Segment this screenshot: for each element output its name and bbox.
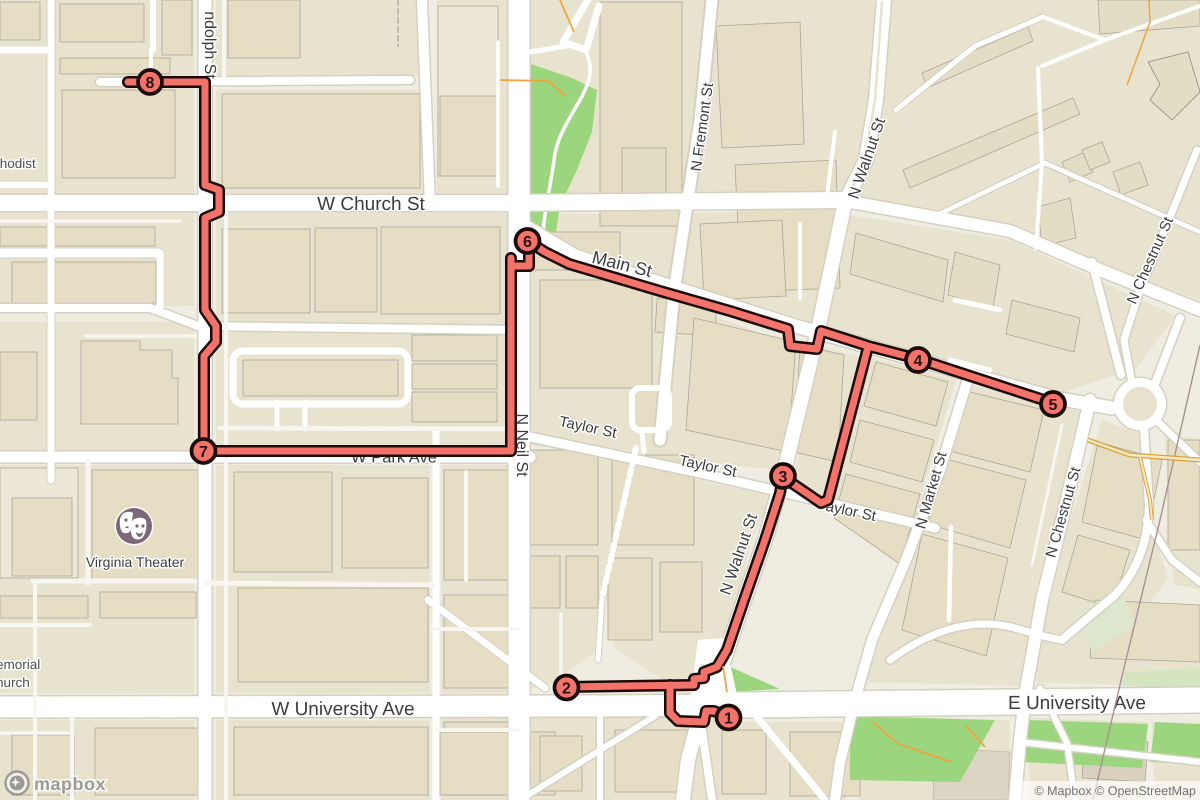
svg-text:ndolph St: ndolph St — [201, 11, 218, 79]
svg-text:W University Ave: W University Ave — [271, 699, 414, 720]
svg-text:5: 5 — [1049, 397, 1058, 414]
svg-text:Virginia Theater: Virginia Theater — [86, 554, 185, 570]
svg-text:hurch: hurch — [0, 675, 30, 690]
svg-text:8: 8 — [146, 75, 155, 92]
svg-text:E University Ave: E University Ave — [1008, 693, 1146, 714]
svg-text:4: 4 — [914, 353, 923, 370]
svg-text:emorial: emorial — [0, 657, 40, 672]
svg-text:mapbox: mapbox — [34, 774, 106, 794]
svg-text:1: 1 — [724, 711, 733, 728]
svg-text:7: 7 — [199, 444, 208, 461]
svg-text:W Church St: W Church St — [317, 194, 425, 215]
svg-text:thodist: thodist — [0, 156, 36, 171]
svg-text:6: 6 — [523, 234, 532, 251]
svg-text:2: 2 — [562, 681, 571, 698]
svg-text:© Mapbox © OpenStreetMap: © Mapbox © OpenStreetMap — [1034, 784, 1196, 798]
svg-text:3: 3 — [779, 469, 788, 486]
